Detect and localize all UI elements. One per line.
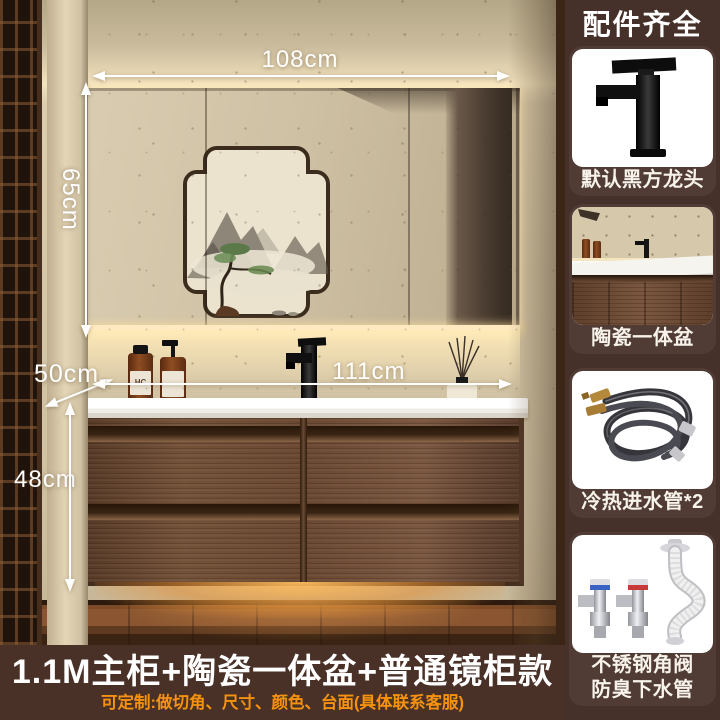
mini-bottle [582, 239, 590, 259]
drain-card-image [572, 535, 713, 653]
mirror-door-seam [205, 88, 207, 330]
dim-cabinet-height-label: 48cm [14, 466, 77, 494]
customization-note: 可定制:做切角、尺寸、颜色、台面(具体联系客服) [101, 692, 464, 714]
mini-cabinet [572, 275, 713, 325]
faucet-aerator [286, 362, 295, 369]
vanity-cabinet [82, 418, 524, 586]
ceramic-countertop [78, 398, 528, 418]
dim-mirror-width-arrow [104, 75, 498, 77]
wood-lattice-panel [0, 0, 42, 645]
right-wall-shade [508, 0, 556, 645]
mirror-door-seam [408, 88, 410, 330]
hoses-card-image [572, 371, 713, 489]
black-square-faucet-icon [572, 49, 713, 167]
bathroom-scene: HC [0, 0, 565, 645]
bottle-cap [133, 345, 148, 354]
basin-card-label: 陶瓷一体盆 [572, 325, 713, 351]
faucet-card-label: 默认黑方龙头 [572, 167, 713, 193]
dim-mirror-height-arrow [85, 94, 87, 326]
accessory-card-basin: 陶瓷一体盆 [569, 204, 716, 354]
braided-hoses-icon [572, 371, 713, 489]
cabinet-center-divider [300, 418, 307, 582]
accessories-title: 配件齐全 [565, 3, 720, 43]
dim-basin-width-label: 111cm [332, 358, 405, 386]
wall-pillar [47, 0, 88, 645]
basin-card-image [572, 207, 713, 325]
accessory-card-hoses: 冷热进水管*2 [569, 368, 716, 518]
drain-card-label-line1: 不锈钢角阀 [572, 653, 713, 678]
dim-mirror-height-label: 65cm [56, 168, 84, 231]
accessory-card-faucet: 默认黑方龙头 [569, 46, 716, 196]
basin-photo [572, 207, 713, 325]
angle-valves-drain-icon [572, 535, 713, 653]
product-image: HC [0, 0, 720, 720]
product-title-banner: 1.1M主柜+陶瓷一体盆+普通镜柜款 可定制:做切角、尺寸、颜色、台面(具体联系… [0, 645, 565, 720]
dim-mirror-width-label: 108cm [230, 46, 370, 74]
mirror-cabinet [88, 88, 520, 330]
dim-basin-width-arrow [104, 383, 500, 385]
mini-drawer-groove [572, 275, 713, 282]
pump-spout [162, 340, 178, 346]
hoses-card-label: 冷热进水管*2 [572, 489, 713, 515]
product-title: 1.1M主柜+陶瓷一体盆+普通镜柜款 [12, 652, 553, 692]
accessories-sidebar: 配件齐全 默认黑方龙头 [565, 0, 720, 720]
dim-counter-depth-label: 50cm [34, 360, 99, 389]
mini-bottle [593, 241, 601, 259]
floor-light-pool [120, 600, 480, 640]
dim-cabinet-height-arrow [69, 414, 71, 580]
mirror-corner-reflection [446, 88, 512, 330]
drain-card-label-line2: 防臭下水管 [572, 678, 713, 703]
right-door-frame [556, 0, 565, 645]
accessory-card-drain: 不锈钢角阀 防臭下水管 [569, 532, 716, 706]
faucet-card-image [572, 49, 713, 167]
